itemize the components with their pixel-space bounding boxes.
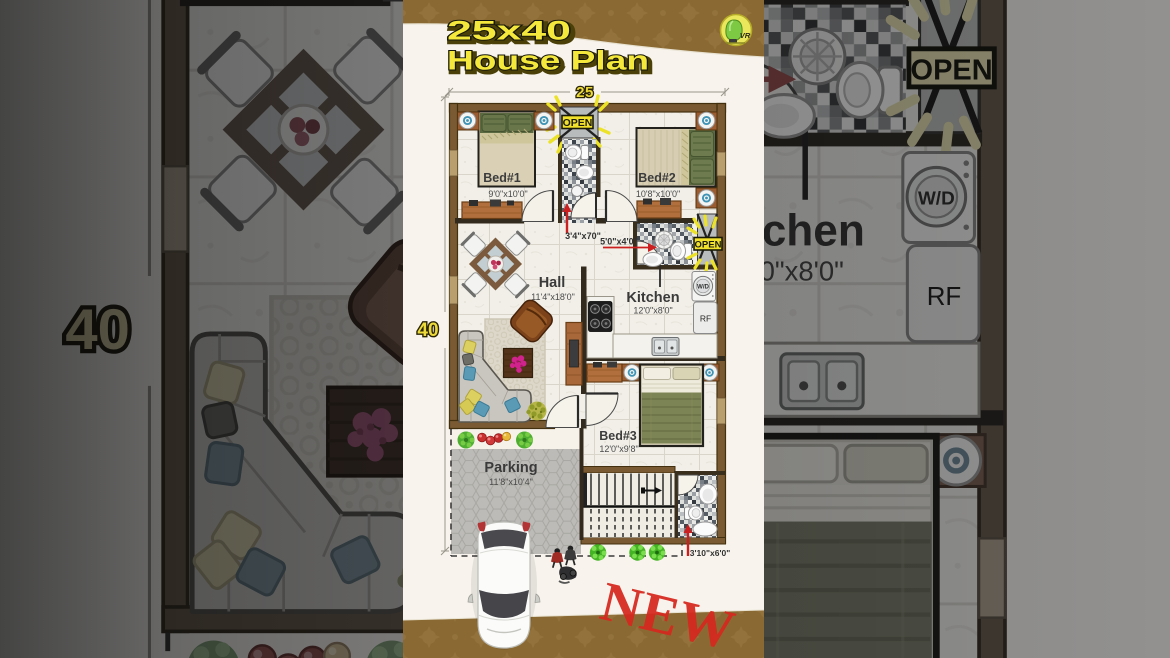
svg-text:VR: VR [740, 31, 751, 40]
svg-text:25x40: 25x40 [447, 16, 571, 46]
svg-text:House Plan: House Plan [447, 46, 649, 76]
